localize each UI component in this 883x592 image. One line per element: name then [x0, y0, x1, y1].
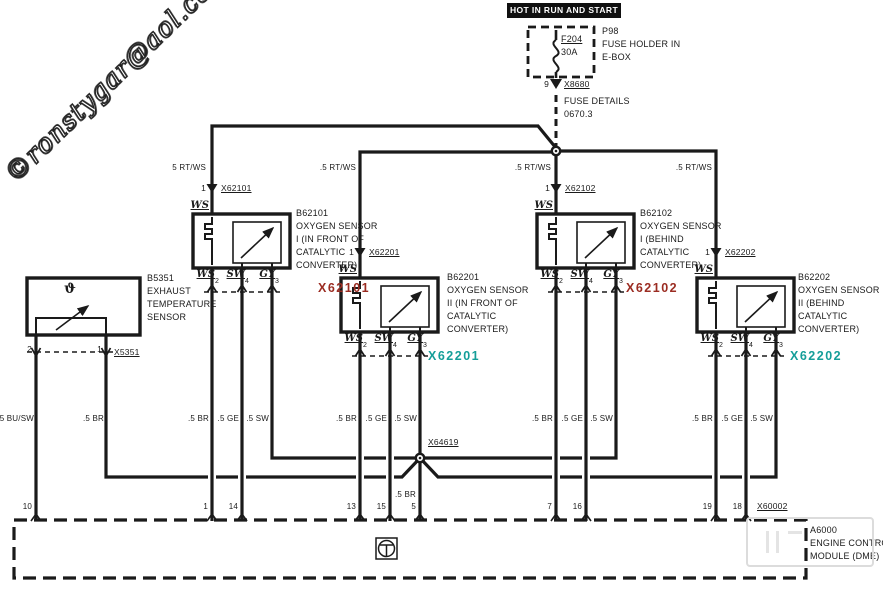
wire-color-label: .5 SW: [750, 414, 773, 423]
pin-number: 2: [27, 344, 32, 354]
dme-pin-number: 13: [347, 502, 356, 511]
connector-callout-x62101: X62101: [318, 281, 370, 295]
wire-tag-ws: WS: [191, 200, 209, 211]
pin-wire-tag: GY: [259, 269, 275, 280]
connector-ref-x64619: X64619: [428, 437, 459, 447]
dme-ground-symbol: [376, 538, 397, 559]
dme-pin-number: 1: [203, 502, 208, 511]
wire-color-label: .5 GE: [218, 414, 239, 423]
pin-number: 1: [349, 247, 354, 257]
fuse-holder-name-2: E-BOX: [602, 51, 680, 64]
pin-wire-tag: SW: [227, 269, 245, 280]
component-label-b62201: B62201 OXYGEN SENSOR II (IN FRONT OF CAT…: [447, 271, 529, 336]
component-label-b62202: B62202 OXYGEN SENSOR II (BEHIND CATALYTI…: [798, 271, 880, 336]
wire-color-label: .5 BR: [188, 414, 209, 423]
pin-number: 1: [545, 183, 550, 193]
component-id: B62202: [798, 271, 880, 284]
wire-label-rtws-3: .5 RT/WS: [515, 163, 551, 172]
pin-number: 3: [423, 342, 427, 349]
pin-wire-tag: GY: [763, 333, 779, 344]
wire-tag-ws: WS: [695, 264, 713, 275]
fuse-details-note: FUSE DETAILS 0670.3: [564, 95, 630, 121]
pin-number: 2: [559, 278, 563, 285]
dme-pin-number: 15: [377, 502, 386, 511]
theta-symbol: ϑ: [64, 281, 76, 297]
pin-wire-tag: WS: [345, 333, 363, 344]
wire-color-label: .5 BR: [83, 414, 104, 423]
pin-number: 2: [363, 342, 367, 349]
pin-wire-tag: WS: [197, 269, 215, 280]
pin-wire-tag: GY: [603, 269, 619, 280]
connector-callout-x62202: X62202: [790, 349, 842, 363]
wire-label-rtws-2: .5 RT/WS: [320, 163, 356, 172]
pin-wire-tag: WS: [541, 269, 559, 280]
pin-number: 4: [245, 278, 249, 285]
fuse-details-line-1: FUSE DETAILS: [564, 95, 630, 108]
connector-ref-x8680: X8680: [564, 79, 590, 89]
fuse-holder-name-1: FUSE HOLDER IN: [602, 38, 680, 51]
power-banner: HOT IN RUN AND START: [507, 3, 621, 18]
connector-ref-x5351: X5351: [114, 347, 140, 357]
faint-stamp: [746, 517, 874, 567]
wiring-layer: [0, 0, 883, 592]
dme-pin-number: 18: [733, 502, 742, 511]
component-label-b62101: B62101 OXYGEN SENSOR I (IN FRONT OF CATA…: [296, 207, 378, 272]
wire-tag-ws: WS: [535, 200, 553, 211]
wire-tag-ws: WS: [339, 264, 357, 275]
pin-number: 3: [619, 278, 623, 285]
wire-color-label: .5 SW: [394, 414, 417, 423]
connector-ref-x60002: X60002: [757, 501, 788, 511]
pin-wire-tag: WS: [701, 333, 719, 344]
dme-pin-number: 5: [411, 502, 416, 511]
connector-ref-x62101: X62101: [221, 183, 252, 193]
wire-color-label: .5 SW: [246, 414, 269, 423]
component-id: B62102: [640, 207, 722, 220]
wire-color-label: .5 GE: [366, 414, 387, 423]
fuse-details-line-2: 0670.3: [564, 108, 630, 121]
wire-color-label: .5 SW: [590, 414, 613, 423]
component-id: B62101: [296, 207, 378, 220]
connector-callout-x62201: X62201: [428, 349, 480, 363]
connector-ref-x62102: X62102: [565, 183, 596, 193]
wire-label-rtws-4: .5 RT/WS: [676, 163, 712, 172]
pin-number: 2: [215, 278, 219, 285]
dme-pin-number: 16: [573, 502, 582, 511]
wire-color-label: .5 GE: [562, 414, 583, 423]
pin-number: 4: [589, 278, 593, 285]
pin-wire-tag: GY: [407, 333, 423, 344]
pin-number: 1: [705, 247, 710, 257]
connector-callout-x62102: X62102: [626, 281, 678, 295]
pin-number: 3: [779, 342, 783, 349]
dme-box: [14, 520, 806, 578]
temp-sensor-box-b5351: [27, 278, 140, 335]
pin-number: 1: [97, 344, 102, 354]
fuse-pin-number: 9: [544, 79, 549, 89]
wire-color-label: .5 GE: [722, 414, 743, 423]
wire-color-label: .5 BR: [692, 414, 713, 423]
pin-number: 2: [719, 342, 723, 349]
fuse-value: F204 30A: [561, 33, 582, 59]
wire-label-splice-out: .5 BR: [395, 490, 416, 499]
wire-color-label: .5 BR: [532, 414, 553, 423]
pin-number: 1: [201, 183, 206, 193]
pin-wire-tag: SW: [375, 333, 393, 344]
component-label-b62102: B62102 OXYGEN SENSOR I (BEHIND CATALYTIC…: [640, 207, 722, 272]
wire-label-rtws-1: 5 RT/WS: [172, 163, 206, 172]
pin-wire-tag: SW: [731, 333, 749, 344]
dme-pin-number: 10: [23, 502, 32, 511]
wire-color-label: .5 BU/SW: [0, 414, 34, 423]
fuse-holder-label: P98 FUSE HOLDER IN E-BOX: [602, 25, 680, 64]
pin-number: 4: [393, 342, 397, 349]
fuse-rating: 30A: [561, 46, 582, 59]
wire-color-label: .5 BR: [336, 414, 357, 423]
fuse-holder-id: P98: [602, 25, 680, 38]
dme-pin-number: 7: [547, 502, 552, 511]
dme-pin-number: 14: [229, 502, 238, 511]
fuse-id: F204: [561, 33, 582, 46]
pin-number: 4: [749, 342, 753, 349]
fuse-symbol: [553, 40, 558, 72]
pin-number: 3: [275, 278, 279, 285]
connector-ref-x62202: X62202: [725, 247, 756, 257]
connector-arrow-x8680: [550, 79, 562, 89]
component-id: B62201: [447, 271, 529, 284]
pin-wire-tag: SW: [571, 269, 589, 280]
dme-pin-number: 19: [703, 502, 712, 511]
connector-ref-x62201: X62201: [369, 247, 400, 257]
wiring-diagram-page: ©ronstygar@aol.com HOT IN RUN AND START …: [0, 0, 883, 592]
